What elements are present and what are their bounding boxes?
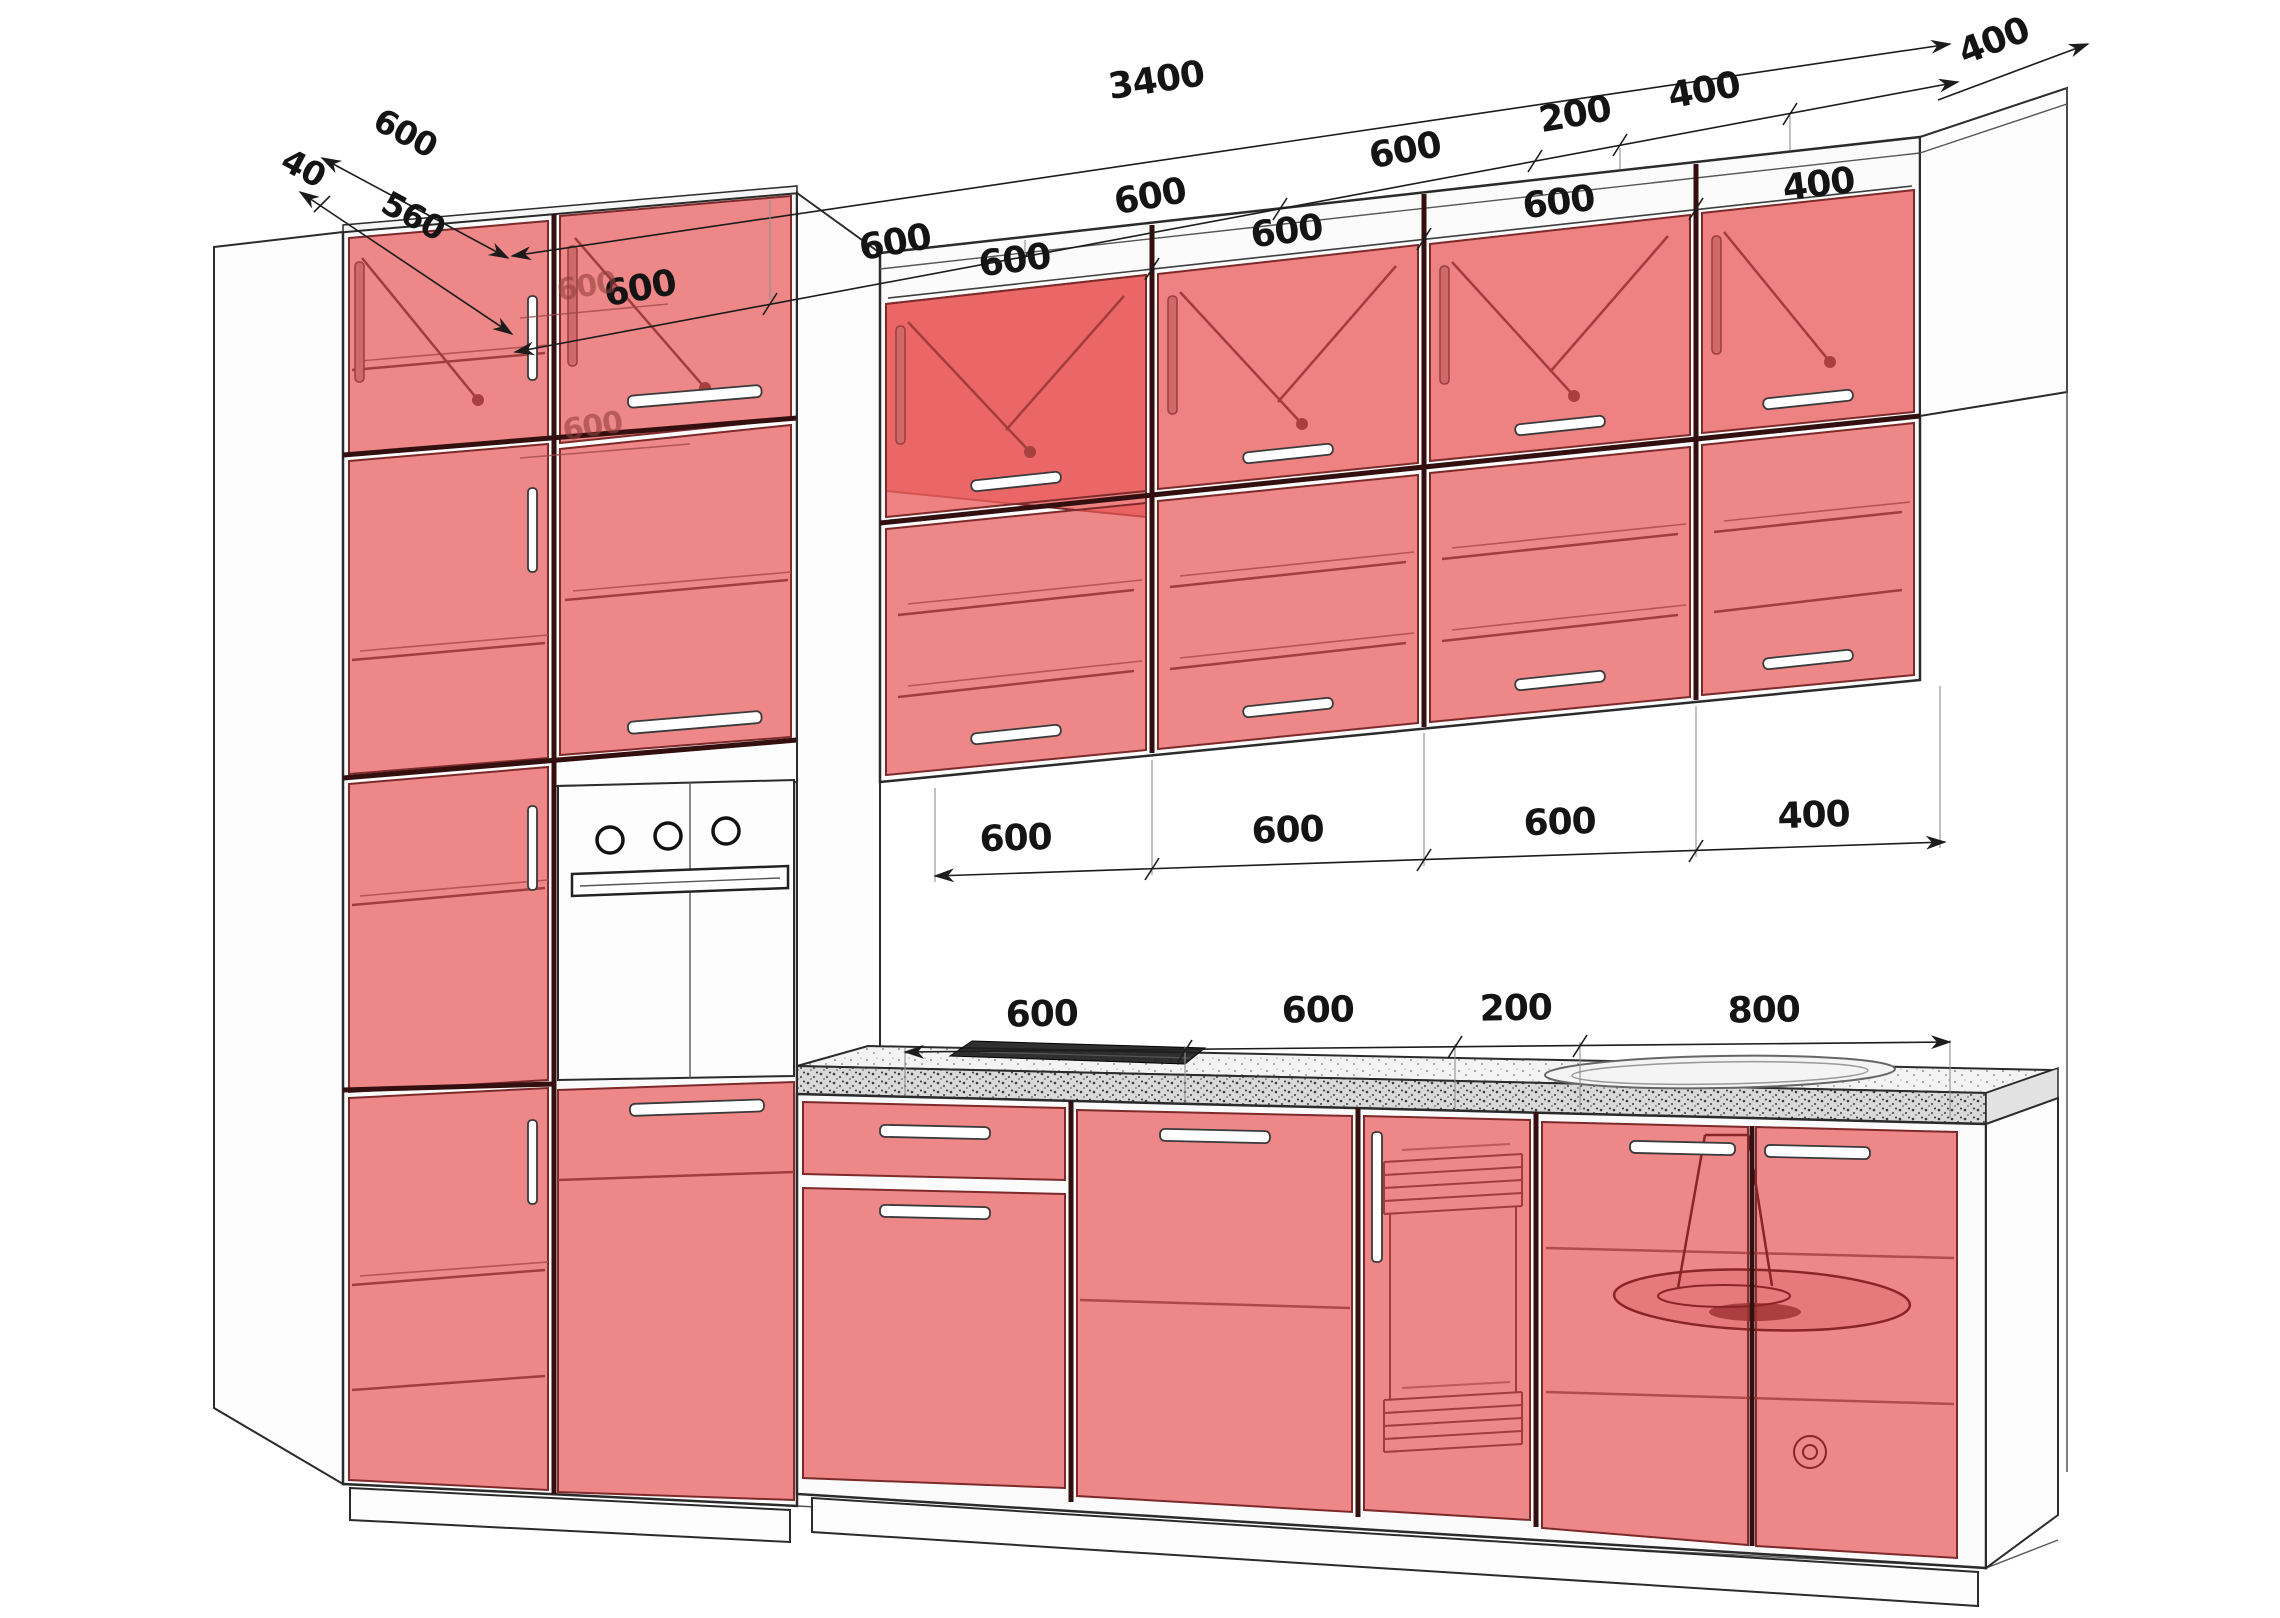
pantry-door-top [349,221,548,455]
dim-label: 200 [1479,987,1552,1029]
sink-door-right [1756,1127,1957,1558]
base-door-1 [803,1188,1065,1488]
kitchen-elevation-drawing: 3400 600 600 600 600 200 400 400 600 40 … [0,0,2280,1618]
pantry-door-low [349,767,548,1092]
wall-right-side-panel [1920,88,2067,416]
dim-label: 400 [1780,160,1857,209]
dim-label: 600 [1281,989,1354,1031]
oven-knob-icon [655,823,681,849]
base-cabinet-run [797,1094,2058,1568]
dim-label: 600 [1520,178,1597,227]
base-door-2 [1077,1110,1352,1512]
cargo-door [1364,1116,1530,1520]
left-side-panel [214,232,343,1484]
oven-knob-icon [597,827,623,853]
dim-label: 400 [1777,794,1851,837]
pantry-door-base [349,1088,548,1490]
filler-column [797,193,880,1069]
dim-label: 600 [976,236,1053,285]
base-drawer-front [803,1102,1065,1180]
dim-label: 600 [1005,993,1078,1035]
sink-door-left [1542,1122,1748,1545]
pantry-door-mid [349,444,548,774]
oven-column-base-front [558,1082,794,1500]
oven-knob-icon [713,818,739,844]
tall-cabinet-section [214,186,797,1506]
oven [558,780,794,1080]
dim-label: 800 [1727,989,1800,1031]
dim-label: 600 [1523,801,1597,844]
oven-column-door-top [560,196,791,443]
base-right-side-panel [1986,1098,2058,1568]
dim-label: 600 [1251,809,1325,852]
dim-label: 600 [979,817,1053,860]
dim-label: 600 [1248,207,1325,256]
